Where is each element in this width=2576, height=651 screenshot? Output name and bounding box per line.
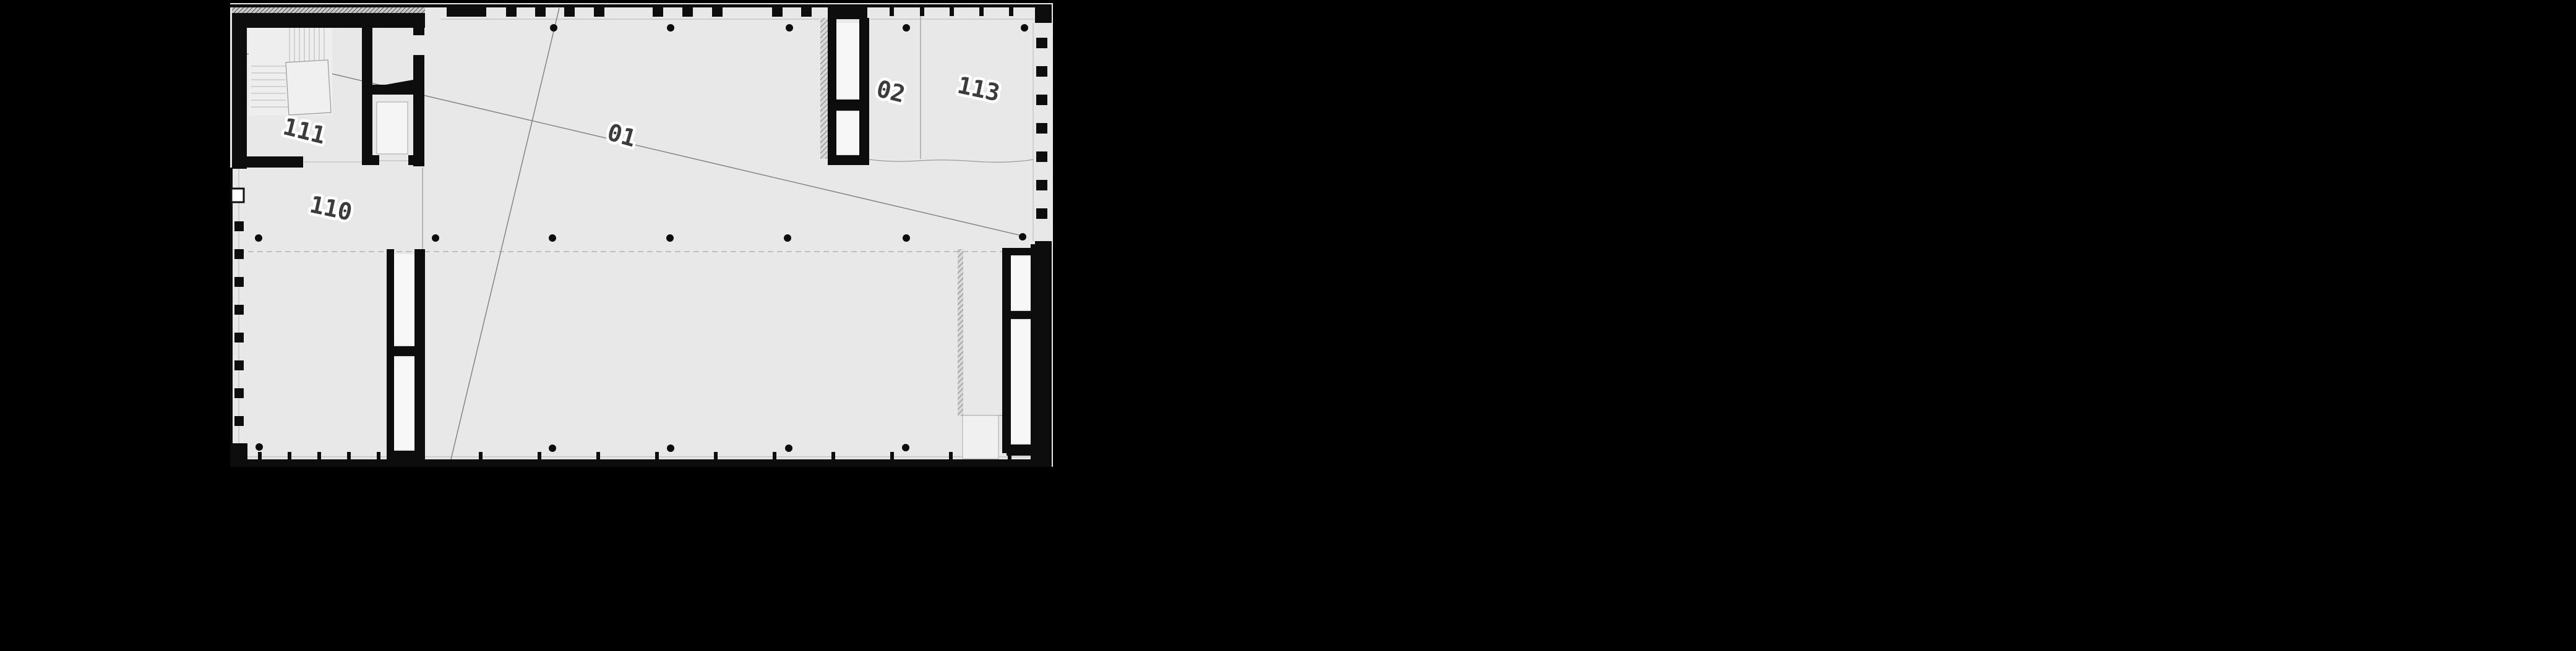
north-facade: [230, 4, 1052, 7]
floor-plan: 111 110 01 02 113: [230, 3, 1053, 467]
service-wall-hatch: [958, 249, 963, 416]
stairwell-111: [249, 28, 332, 116]
elevator-car: [377, 102, 408, 154]
floor-plan-drawing: 111 110 01 02 113: [230, 3, 1053, 467]
facade-notch: [231, 189, 244, 202]
floor-slab: [230, 3, 1053, 467]
north-facade-hatch: [232, 7, 425, 14]
stair-02-hatch: [820, 18, 828, 159]
